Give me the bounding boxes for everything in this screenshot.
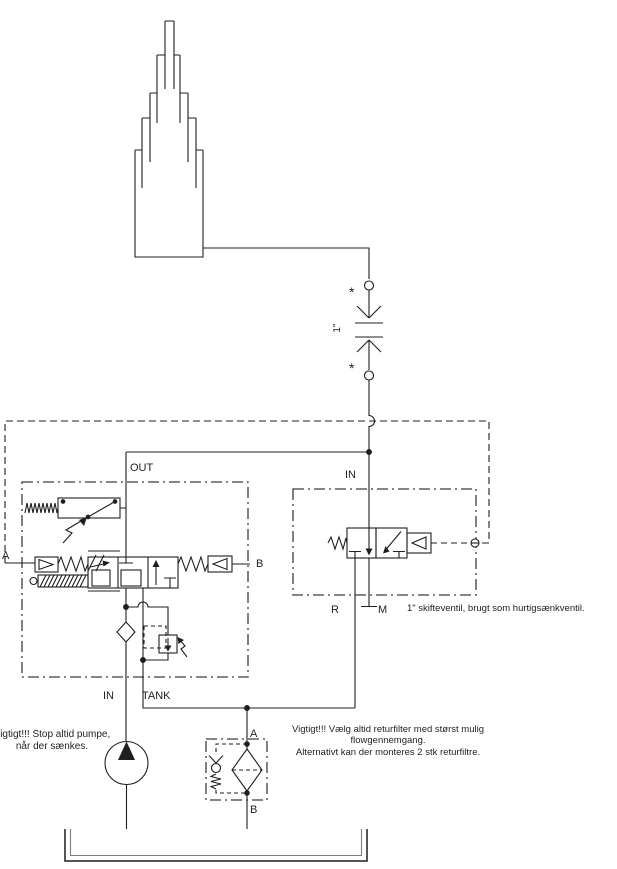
filter-note: Vigtigt!!! Vælg altid returfilter med st… bbox=[270, 724, 506, 758]
pilot-operated-relief-valve bbox=[25, 498, 126, 543]
port-label-m: M bbox=[378, 604, 387, 616]
port-label-tank: TANK bbox=[142, 690, 171, 702]
port-label-a: A bbox=[2, 550, 10, 562]
shuttle-pilot-actuator bbox=[407, 533, 479, 553]
spring bbox=[328, 537, 347, 549]
port-label-b: B bbox=[256, 558, 263, 570]
port-label-out: OUT bbox=[130, 462, 154, 474]
coupling-star-bottom: * bbox=[349, 360, 355, 376]
spring bbox=[211, 774, 221, 789]
spring bbox=[58, 557, 88, 571]
filter-note-line3: Alternativt kan der monteres 2 stk retur… bbox=[270, 747, 506, 758]
load-check-valve bbox=[5, 557, 88, 572]
return-filter bbox=[206, 739, 267, 800]
hydraulic-schematic-page: OUT IN A B IN TANK R M A B * * 1" Vigtig… bbox=[0, 0, 617, 869]
b-side-pilot-check bbox=[178, 556, 250, 572]
pump-warning-note: Vigtigt!!! Stop altid pumpe, når der sæn… bbox=[0, 729, 120, 753]
filter-port-label-a: A bbox=[250, 728, 258, 740]
inline-check-diamond bbox=[117, 622, 135, 642]
cylinder-supply-line bbox=[203, 248, 369, 279]
shuttle-valve bbox=[328, 528, 407, 558]
proportional-solenoid bbox=[30, 575, 88, 587]
filter-port-label-b: B bbox=[250, 804, 257, 816]
port-label-in-shuttle: IN bbox=[345, 469, 356, 481]
junction-dot bbox=[245, 791, 249, 795]
filter-note-line2: flowgennemgang. bbox=[270, 735, 506, 746]
oil-tank bbox=[65, 829, 367, 861]
coupling-star-top: * bbox=[349, 284, 355, 300]
shuttle-valve-block-outline bbox=[293, 489, 476, 595]
shuttle-valve-note: 1" skifteventil, brugt som hurtigsænkven… bbox=[407, 603, 585, 614]
pump-warning-line1: Vigtigt!!! Stop altid pumpe, bbox=[0, 729, 120, 741]
pump-warning-line2: når der sænkes. bbox=[0, 741, 120, 753]
main-directional-valve bbox=[88, 551, 178, 591]
secondary-relief-valve bbox=[144, 626, 187, 657]
spring bbox=[25, 503, 58, 513]
telescopic-cylinder bbox=[135, 21, 203, 257]
junction-dot bbox=[367, 450, 372, 455]
hydraulic-pump bbox=[105, 742, 148, 830]
quick-coupling-bottom bbox=[355, 337, 383, 380]
m-port-line bbox=[361, 558, 377, 607]
tank-line bbox=[143, 588, 355, 708]
coupling-to-valve-line bbox=[369, 380, 375, 452]
port-label-r: R bbox=[331, 604, 339, 616]
spring bbox=[178, 557, 208, 571]
port-label-in-main: IN bbox=[103, 690, 114, 702]
coupling-size-label: 1" bbox=[332, 323, 343, 333]
filter-note-line1: Vigtigt!!! Vælg altid returfilter med st… bbox=[270, 724, 506, 735]
quick-coupling-top bbox=[355, 281, 383, 323]
adjust-arrow bbox=[63, 521, 81, 543]
